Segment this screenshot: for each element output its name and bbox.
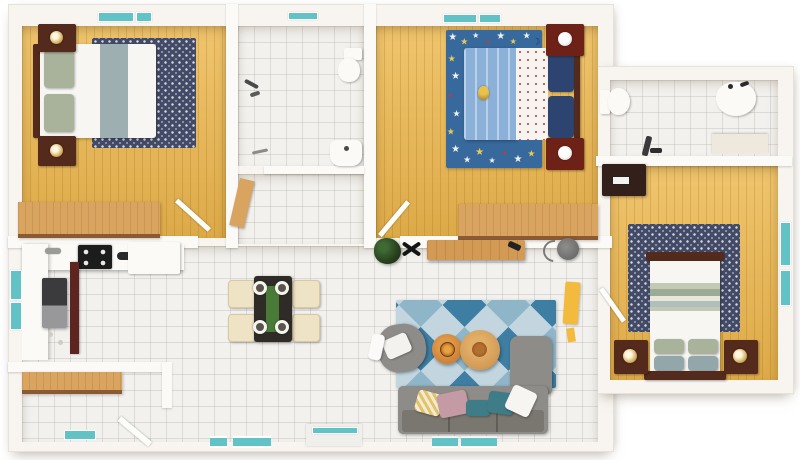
star-icon: ★ bbox=[463, 155, 471, 164]
bed-pillow bbox=[44, 94, 74, 132]
bathroom-fixture bbox=[650, 148, 662, 153]
vanity-counter bbox=[712, 134, 768, 154]
place-setting bbox=[253, 320, 267, 334]
potted-plant bbox=[374, 238, 401, 264]
table-lamp bbox=[733, 349, 747, 363]
window bbox=[780, 270, 791, 306]
kids-bed-blanket bbox=[464, 48, 516, 140]
window bbox=[479, 14, 501, 23]
table-lamp bbox=[558, 146, 572, 160]
room-hallway bbox=[238, 174, 364, 244]
dining-chair bbox=[228, 314, 256, 342]
dining-chair bbox=[292, 314, 320, 342]
kids-pillow bbox=[548, 96, 574, 138]
kids-desk bbox=[458, 204, 598, 240]
wall bbox=[364, 4, 376, 248]
laundry-shelf bbox=[22, 372, 122, 394]
kids-bed-headboard bbox=[574, 46, 580, 142]
window bbox=[136, 12, 152, 22]
place-setting bbox=[253, 281, 267, 295]
cabinet-knob bbox=[48, 332, 53, 337]
side-chair bbox=[399, 239, 424, 259]
coffee-table-bowl bbox=[440, 342, 455, 357]
refrigerator bbox=[42, 278, 67, 328]
window bbox=[98, 12, 134, 22]
bathroom-sink bbox=[330, 140, 362, 166]
moon-icon: ☽ bbox=[532, 38, 540, 47]
pantry-cabinet bbox=[70, 262, 79, 354]
yellow-drape bbox=[563, 282, 581, 325]
bed-footboard bbox=[646, 252, 724, 261]
teddy-bear bbox=[478, 86, 489, 100]
kids-bed-sheet bbox=[516, 48, 548, 140]
dot-icon: ● bbox=[502, 149, 506, 156]
sink-faucet bbox=[728, 84, 733, 89]
dresser-tv bbox=[612, 176, 630, 185]
kitchen-faucet bbox=[45, 248, 61, 254]
star-icon: ★ bbox=[448, 33, 457, 43]
table-lamp bbox=[50, 31, 63, 44]
table-lamp bbox=[558, 32, 572, 46]
kids-pillow bbox=[548, 50, 574, 92]
table-lamp bbox=[623, 349, 637, 363]
dot-icon: ● bbox=[486, 39, 490, 46]
cabinet-knob bbox=[58, 340, 63, 345]
star-icon: ★ bbox=[496, 32, 505, 42]
bed-pillow bbox=[654, 356, 684, 371]
star-icon: ★ bbox=[527, 150, 535, 159]
star-icon: ★ bbox=[475, 148, 484, 158]
table-lamp bbox=[50, 144, 63, 157]
window bbox=[780, 222, 791, 266]
window bbox=[210, 436, 227, 448]
bed-headboard bbox=[33, 44, 40, 138]
bed-pillow bbox=[654, 339, 684, 354]
window bbox=[10, 302, 22, 330]
wall bbox=[8, 362, 166, 372]
window bbox=[461, 436, 497, 448]
dining-chair bbox=[292, 280, 320, 308]
wall bbox=[162, 362, 172, 408]
star-icon: ★ bbox=[448, 54, 456, 63]
coffee-table-decor bbox=[472, 342, 487, 357]
window bbox=[10, 270, 22, 300]
patio-door-glass bbox=[312, 427, 358, 434]
star-icon: ★ bbox=[488, 157, 495, 165]
floor-plan: ★★★●★★★☽★★●★★★★★★●★★ bbox=[0, 0, 800, 460]
bed-throw bbox=[100, 44, 128, 138]
star-icon: ★ bbox=[447, 128, 455, 137]
window bbox=[233, 436, 271, 448]
place-setting bbox=[275, 281, 289, 295]
dot-icon: ● bbox=[449, 93, 453, 100]
bed-blanket bbox=[650, 283, 720, 311]
bathroom-sink bbox=[716, 82, 756, 116]
bed-pillow bbox=[688, 339, 718, 354]
toilet bbox=[608, 88, 630, 115]
bed-pillow bbox=[44, 50, 74, 88]
star-icon: ★ bbox=[514, 155, 523, 165]
dining-chair bbox=[228, 280, 256, 308]
place-setting bbox=[275, 320, 289, 334]
window bbox=[288, 12, 318, 20]
star-icon: ★ bbox=[453, 110, 461, 119]
wall bbox=[264, 166, 364, 174]
cooktop bbox=[78, 245, 112, 269]
toilet bbox=[338, 58, 360, 82]
star-icon: ★ bbox=[510, 38, 517, 46]
master-desk bbox=[18, 202, 160, 238]
window bbox=[432, 436, 458, 448]
star-icon: ★ bbox=[451, 145, 460, 155]
star-icon: ★ bbox=[451, 72, 460, 82]
star-icon: ★ bbox=[523, 31, 531, 40]
bed-pillow bbox=[688, 356, 718, 371]
star-icon: ★ bbox=[472, 32, 479, 40]
sink-faucet bbox=[344, 146, 349, 151]
star-icon: ★ bbox=[460, 38, 468, 47]
bed-headboard bbox=[644, 371, 726, 380]
window bbox=[443, 14, 477, 23]
floor-mat bbox=[64, 430, 96, 440]
dishwasher bbox=[128, 242, 180, 274]
